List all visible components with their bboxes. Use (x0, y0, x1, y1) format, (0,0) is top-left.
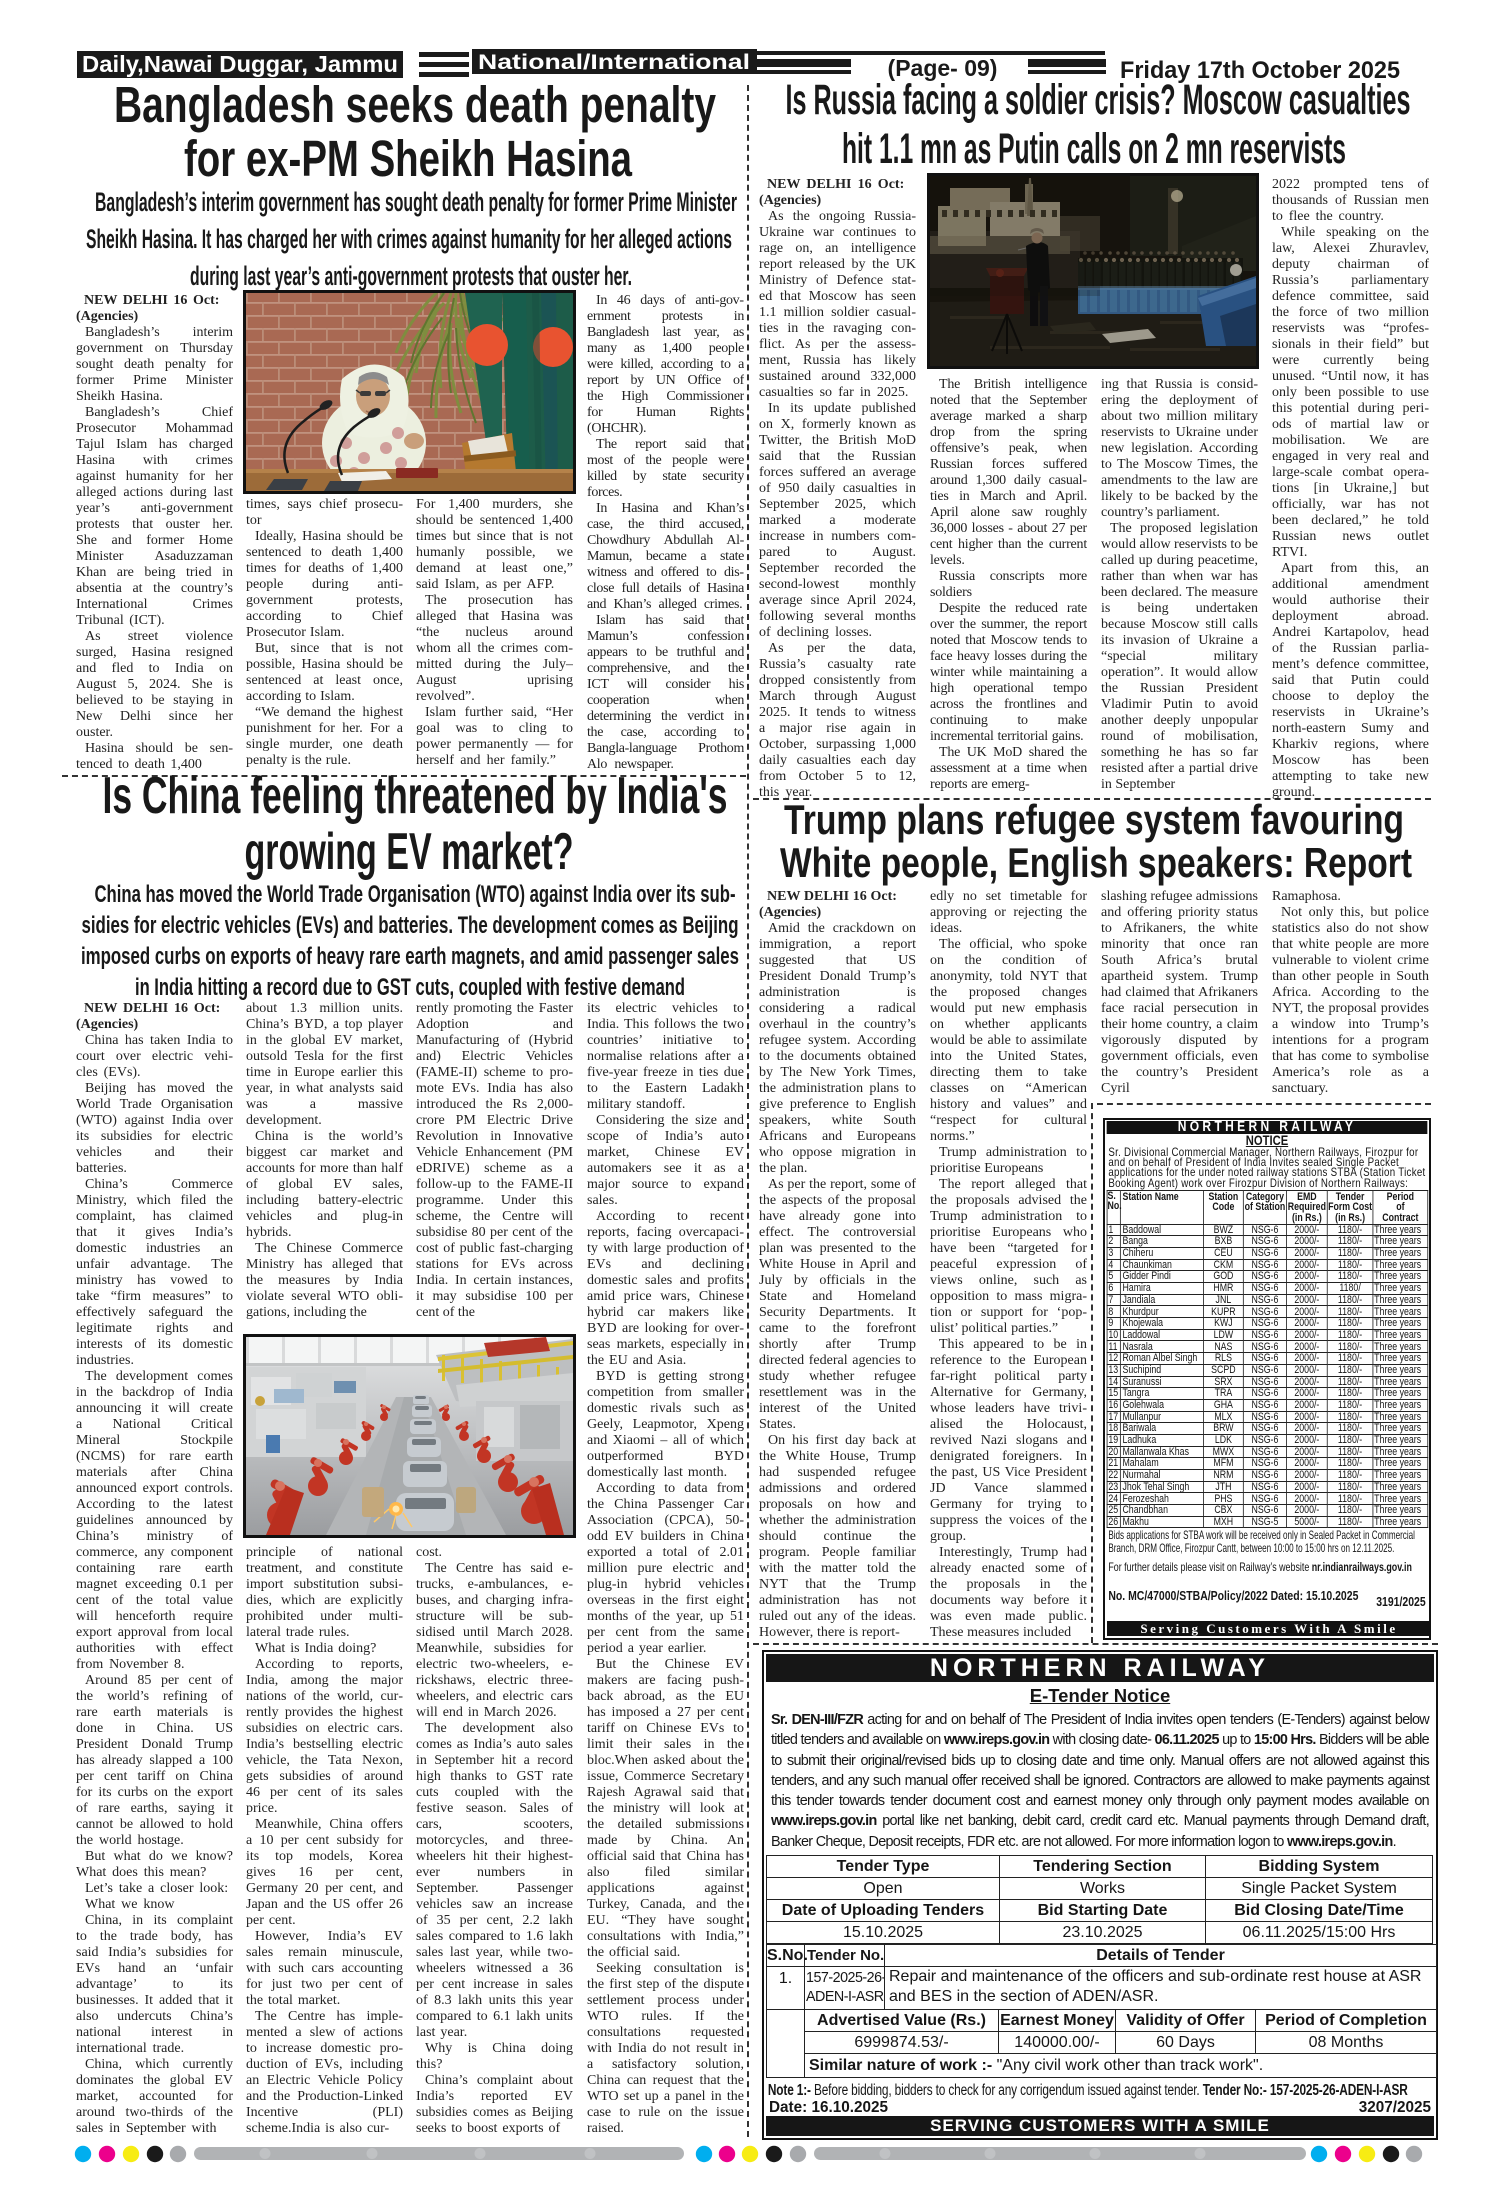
svg-text:imposed curbs on exports of he: imposed curbs on exports of heavy rare e… (81, 943, 739, 970)
svg-text:Daily,Nawai Duggar, Jammu: Daily,Nawai Duggar, Jammu (82, 51, 398, 77)
svg-text:hit 1.1 mn as Putin calls on 2: hit 1.1 mn as Putin calls on 2 mn reserv… (842, 125, 1346, 173)
svg-text:Trump plans refugee system fav: Trump plans refugee system favouring (784, 796, 1404, 843)
svg-text:China has moved the World Trad: China has moved the World Trade Organisa… (95, 881, 736, 908)
svg-text:during last year’s anti-govern: during last year’s anti-government prote… (190, 261, 632, 291)
svg-text:Sheikh Hasina. It has charged: Sheikh Hasina. It has charged her with c… (86, 224, 732, 254)
svg-text:White people, English speakers: White people, English speakers: Report (780, 839, 1412, 886)
svg-text:in India hitting a record due: in India hitting a record due to GST cut… (135, 974, 685, 1001)
svg-text:sidies for electric vehicles (: sidies for electric vehicles (EVs) and b… (82, 912, 739, 939)
svg-text:Bangladesh’s interim governmen: Bangladesh’s interim government has soug… (95, 187, 737, 217)
svg-text:Is Russia facing a soldier cri: Is Russia facing a soldier crisis? Mosco… (786, 80, 1411, 124)
svg-text:Bangladesh seeks death penalty: Bangladesh seeks death penalty (114, 78, 716, 133)
svg-text:for ex-PM Sheikh Hasina: for ex-PM Sheikh Hasina (184, 130, 632, 187)
svg-text:National/International: National/International (478, 51, 750, 74)
svg-text:growing EV market?: growing EV market? (245, 823, 574, 881)
